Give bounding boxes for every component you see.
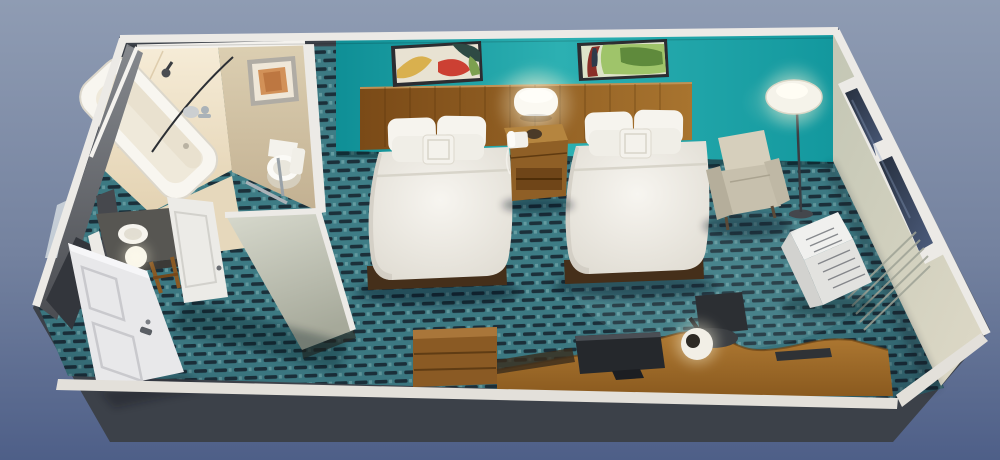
bathroom-artwork (247, 56, 299, 106)
bed-duvet (369, 147, 513, 280)
wall-art-left (391, 41, 483, 87)
nightstand (502, 124, 574, 213)
room-render (0, 0, 1000, 460)
curtain-rings (183, 106, 199, 118)
nightstand-tray (526, 129, 542, 139)
wall-art-right (577, 39, 669, 81)
tub-drain (183, 143, 189, 149)
desk-lamp (669, 315, 725, 371)
dresser (413, 327, 497, 387)
